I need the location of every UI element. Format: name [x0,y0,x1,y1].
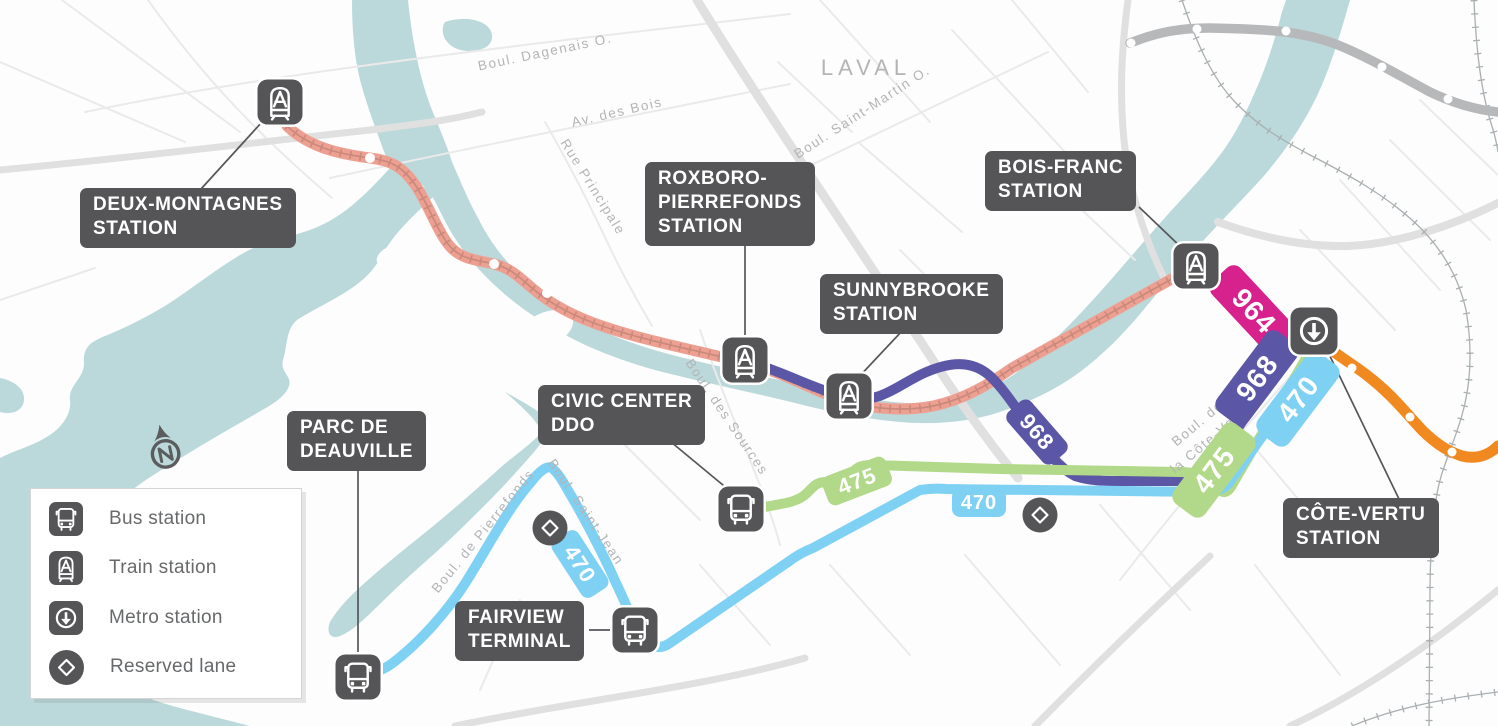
reserved-lane-icon [49,650,84,685]
reserved-lane-icon-mid [1023,498,1058,533]
train-station-icon-bois-franc [1174,244,1219,289]
metro-icon [49,601,83,635]
bus-station-icon-civic-center [719,487,764,532]
bus-station-icon-fairview [613,608,658,653]
left-edge-pond [0,378,24,413]
legend-item-metro: Metro station [49,600,223,636]
station-label-bois-franc: BOIS-FRANC STATION [985,151,1136,211]
legend-item-bus: Bus station [49,501,206,537]
legend-panel: Bus station Train station Metro station … [30,488,302,699]
legend-item-label: Metro station [109,607,223,629]
region-label-laval: LAVAL [821,55,911,81]
metro-station-icon-cote-vertu [1291,308,1338,355]
station-label-fairview-terminal: FAIRVIEW TERMINAL [455,601,584,661]
legend-item-train: Train station [49,550,217,586]
bus-icon [49,502,83,536]
railways [1182,0,1498,726]
legend-item-reserved-lane: Reserved lane [49,649,236,685]
station-label-parc-de-deauville: PARC DE DEAUVILLE [287,411,426,471]
legend-item-label: Train station [109,557,217,579]
train-station-icon-sunnybrooke [827,374,872,419]
reserved-lane-icon-saint-jean [533,511,568,546]
pond-laval [443,19,492,51]
train-station-icon-roxboro [723,338,768,383]
legend-item-label: Reserved lane [110,656,236,678]
route-badge-470-mid: 470 [952,489,1006,517]
legend-item-label: Bus station [109,508,206,530]
station-label-deux-montagnes: DEUX-MONTAGNES STATION [80,188,296,248]
station-label-roxboro-pierrefonds: ROXBORO- PIERREFONDS STATION [645,162,815,246]
station-label-cote-vertu: CÔTE-VERTU STATION [1283,498,1439,558]
station-label-sunnybrooke: SUNNYBROOKE STATION [820,274,1003,334]
train-icon [49,551,83,585]
train-station-icon-deux-montagnes [258,80,303,125]
bus-station-icon-deauville [336,655,381,700]
transit-map: Boul. Dagenais O. Av. des Bois Rue Princ… [0,0,1498,726]
station-label-civic-center-ddo: CIVIC CENTER DDO [538,385,705,445]
